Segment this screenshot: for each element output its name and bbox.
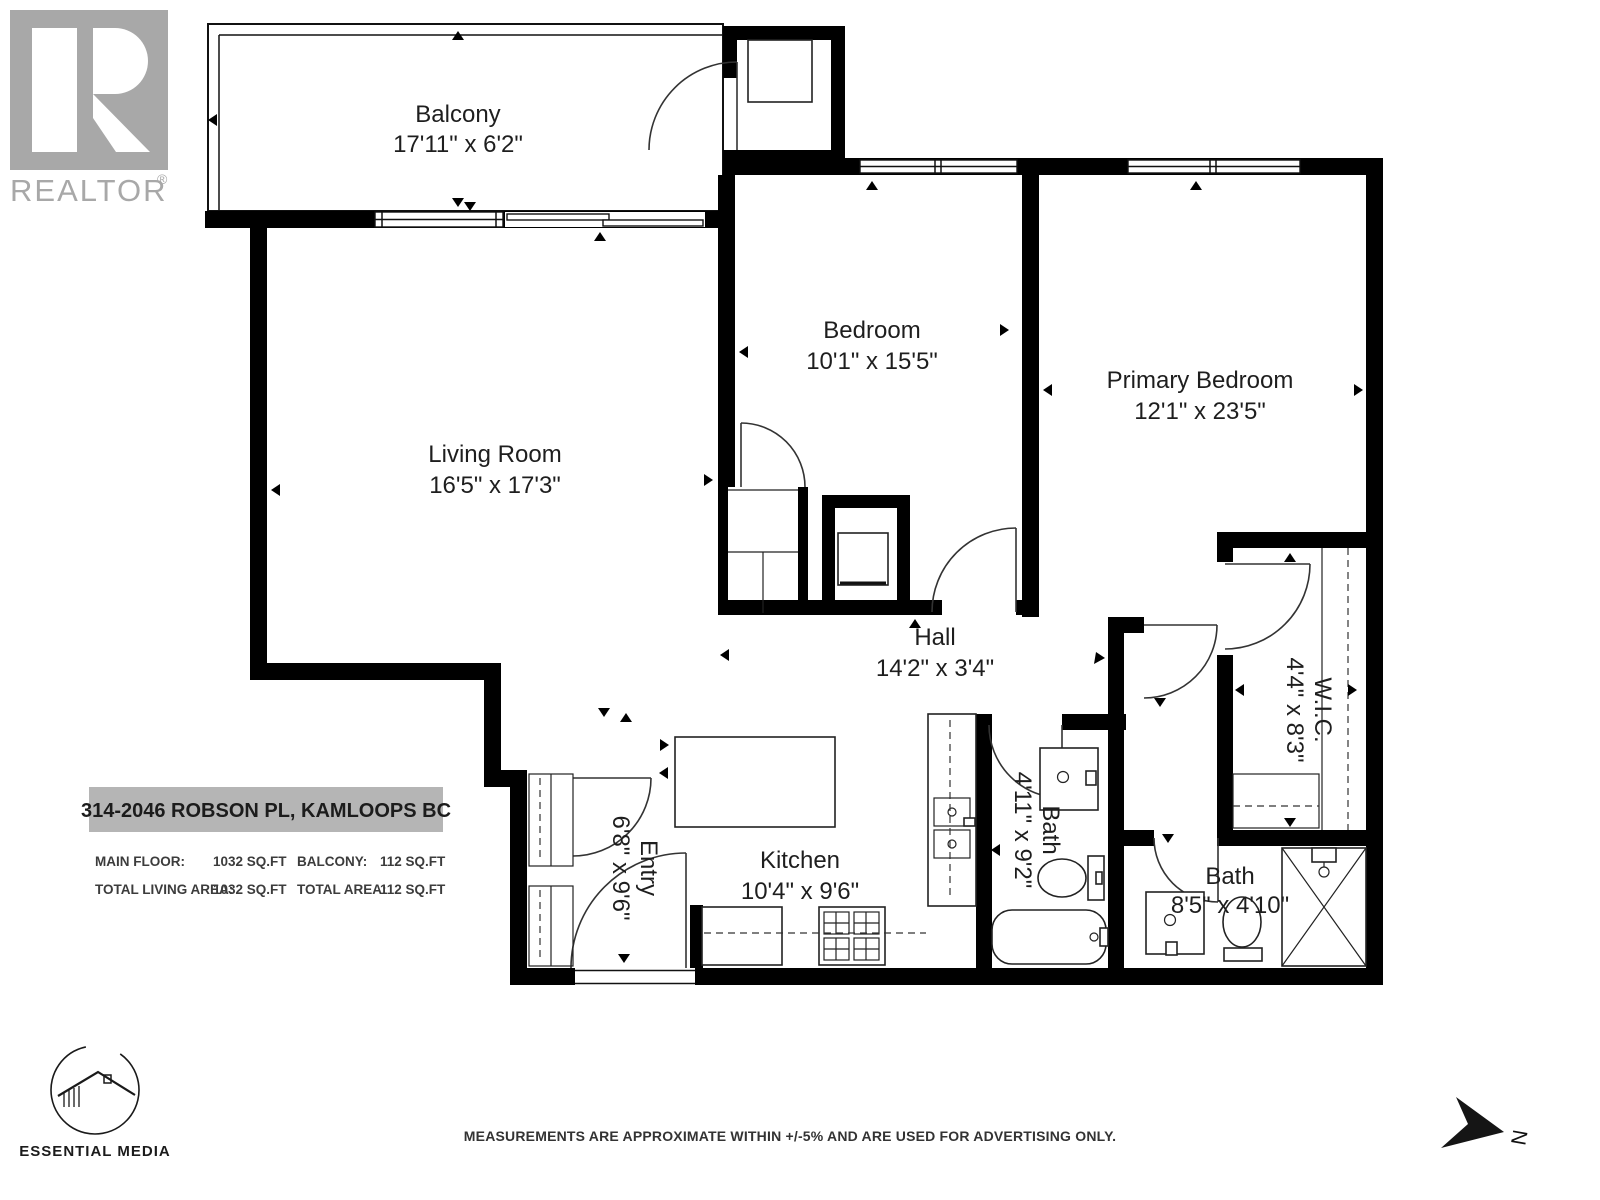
room-dims-entry: 6'8" x 9'6" bbox=[607, 816, 634, 921]
north-arrow: N bbox=[1441, 1097, 1531, 1148]
room-dims-bedroom: 10'1" x 15'5" bbox=[806, 348, 938, 375]
primary-suite-door bbox=[1144, 625, 1217, 698]
kitchen-island bbox=[675, 737, 835, 827]
room-label-bath1: Bath bbox=[1037, 805, 1064, 854]
room-label-kitchen: Kitchen bbox=[760, 847, 840, 874]
area-label-balcony: BALCONY: bbox=[297, 854, 367, 869]
room-dims-hall: 14'2" x 3'4" bbox=[876, 655, 994, 682]
storage-shelf bbox=[748, 40, 812, 102]
floor-plan-svg: REALTOR ® bbox=[0, 0, 1600, 1200]
room-label-hall: Hall bbox=[914, 624, 955, 651]
realtor-wordmark: REALTOR bbox=[10, 173, 168, 208]
room-dims-bath1: 4'11" x 9'2" bbox=[1009, 772, 1036, 889]
room-label-bath2: Bath bbox=[1205, 863, 1254, 890]
registered-mark: ® bbox=[157, 171, 168, 187]
bath1-toilet-icon bbox=[1038, 856, 1104, 900]
washer-icon bbox=[838, 533, 888, 585]
bathtub-icon bbox=[992, 910, 1108, 964]
media-wordmark: ESSENTIAL MEDIA bbox=[19, 1143, 170, 1160]
closet-shelving bbox=[728, 490, 798, 613]
stove-icon bbox=[819, 907, 885, 965]
wic-door bbox=[1225, 564, 1310, 649]
room-label-wic-group: W.I.C. 4'4" x 8'3" bbox=[1281, 658, 1336, 763]
room-label-entry-group: Entry 6'8" x 9'6" bbox=[607, 816, 662, 921]
area-value-total-living: 1032 SQ.FT bbox=[213, 882, 287, 897]
address-title: 314-2046 ROBSON PL, KAMLOOPS BC bbox=[81, 800, 451, 822]
bath1-sink-icon bbox=[1040, 748, 1098, 810]
room-label-balcony: Balcony bbox=[415, 101, 500, 128]
north-label: N bbox=[1506, 1128, 1531, 1147]
shower-icon bbox=[1282, 848, 1366, 966]
disclaimer-text: MEASUREMENTS ARE APPROXIMATE WITHIN +/-5… bbox=[464, 1128, 1116, 1144]
room-dims-living-room: 16'5" x 17'3" bbox=[429, 472, 561, 499]
entry-closet-1 bbox=[529, 774, 573, 866]
area-value-main-floor: 1032 SQ.FT bbox=[213, 854, 287, 869]
area-label-main-floor: MAIN FLOOR: bbox=[95, 854, 185, 869]
room-label-entry: Entry bbox=[635, 840, 662, 896]
realtor-logo: REALTOR ® bbox=[10, 10, 168, 208]
room-dims-bath2: 8'5" x 4'10" bbox=[1171, 892, 1289, 919]
floor-plan-page: REALTOR ® bbox=[0, 0, 1600, 1200]
kitchen-sink-icon bbox=[928, 714, 976, 906]
room-dims-primary-bedroom: 12'1" x 23'5" bbox=[1134, 398, 1266, 425]
logo-circle bbox=[34, 1029, 157, 1152]
room-label-primary-bedroom: Primary Bedroom bbox=[1107, 367, 1294, 394]
kitchen-cabinet bbox=[702, 907, 782, 965]
area-value-balcony: 112 SQ.FT bbox=[380, 854, 446, 869]
north-arrow-icon bbox=[1441, 1097, 1504, 1148]
area-label-total-area: TOTAL AREA: bbox=[297, 882, 387, 897]
room-label-wic: W.I.C. bbox=[1309, 677, 1336, 742]
room-label-bedroom: Bedroom bbox=[823, 317, 920, 344]
fixtures bbox=[529, 40, 1366, 966]
bedroom-closet-door bbox=[741, 423, 805, 487]
room-dims-wic: 4'4" x 8'3" bbox=[1281, 658, 1308, 763]
essential-media-logo: ESSENTIAL MEDIA bbox=[19, 1029, 170, 1160]
address-block: 314-2046 ROBSON PL, KAMLOOPS BC MAIN FLO… bbox=[81, 787, 451, 897]
room-dims-balcony: 17'11" x 6'2" bbox=[393, 131, 523, 158]
room-dims-kitchen: 10'4" x 9'6" bbox=[741, 878, 859, 905]
bedroom-door bbox=[932, 528, 1016, 612]
entry-closet-2 bbox=[529, 886, 573, 966]
room-label-living-room: Living Room bbox=[428, 441, 561, 468]
area-value-total-area: 112 SQ.FT bbox=[380, 882, 446, 897]
